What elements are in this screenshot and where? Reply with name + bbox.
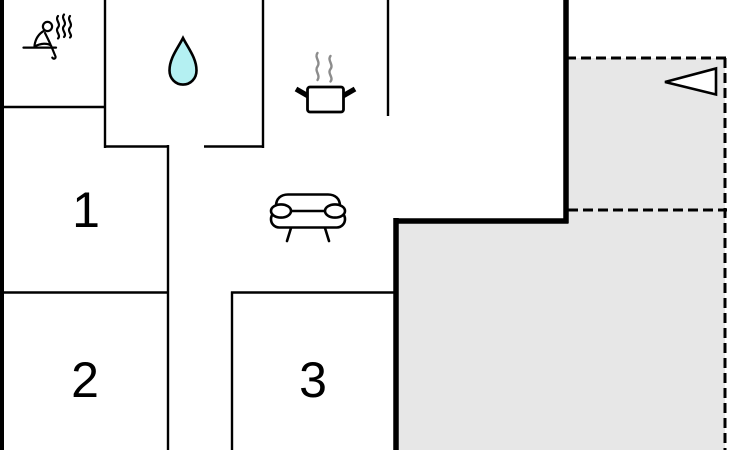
sofa-leg-right — [325, 228, 329, 241]
pot-steam-1 — [316, 53, 318, 80]
floor-plan: 1 2 3 — [0, 0, 730, 450]
room-2-label: 2 — [35, 355, 135, 405]
sauna-person-leg — [35, 44, 56, 59]
sofa-leg-left — [287, 228, 291, 241]
sauna-steam-1 — [57, 16, 59, 39]
room-3-label: 3 — [263, 355, 363, 405]
sauna-icon — [24, 15, 71, 59]
cooking-pot-icon — [296, 53, 355, 112]
pot-steam-2 — [329, 56, 331, 82]
sauna-steam-2 — [63, 15, 65, 38]
sofa-icon — [271, 195, 345, 242]
terrace-area — [396, 58, 725, 450]
sofa-armrest-right — [325, 204, 345, 217]
water-drop-icon — [170, 38, 197, 85]
pot-body — [308, 87, 344, 112]
sauna-steam-3 — [69, 16, 71, 38]
room-1-label: 1 — [36, 185, 136, 235]
sofa-armrest-left — [271, 204, 291, 217]
